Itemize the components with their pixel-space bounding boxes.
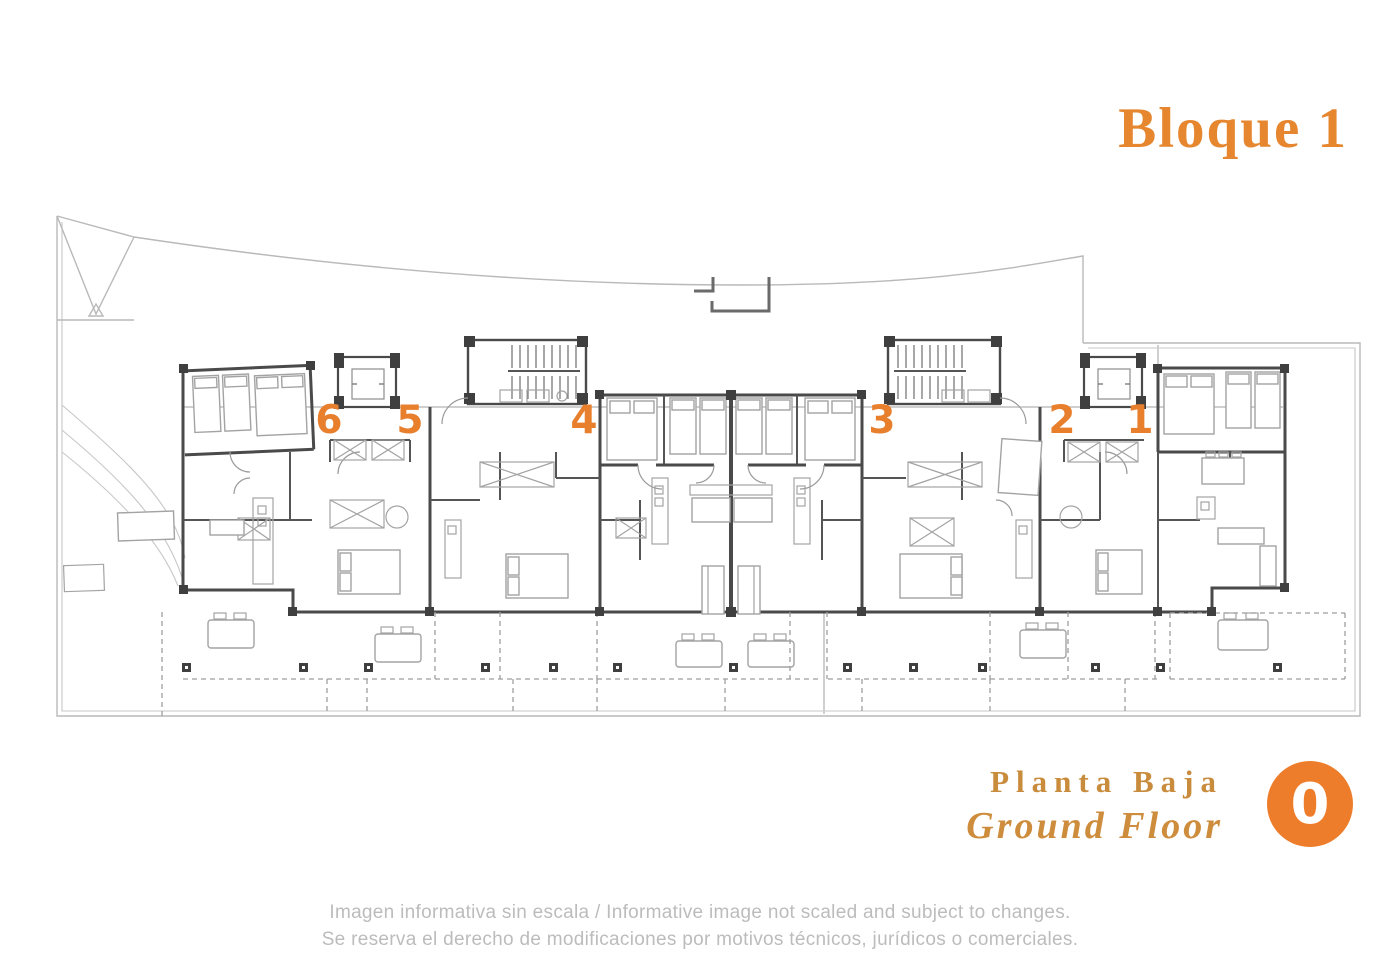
staircase-right — [884, 336, 1026, 424]
floor-name-en: Ground Floor — [966, 804, 1223, 848]
disclaimer: Imagen informativa sin escala / Informat… — [0, 899, 1400, 953]
bedroom-beds-left — [192, 372, 307, 439]
floor-number-badge: 0 — [1267, 761, 1353, 847]
floorplan-page: Bloque 1 — [0, 0, 1400, 969]
unit-label-3: 3 — [868, 398, 895, 443]
unit-label-1: 1 — [1126, 398, 1153, 443]
entry-gate — [694, 277, 769, 311]
unit-label-5: 5 — [396, 398, 423, 443]
terrace-tables — [208, 613, 1268, 667]
unit-label-6: 6 — [315, 398, 342, 443]
staircase-left — [442, 336, 588, 424]
floor-label: Planta Baja Ground Floor — [966, 764, 1223, 848]
disclaimer-line-1: Imagen informativa sin escala / Informat… — [0, 899, 1400, 926]
disclaimer-line-2: Se reserva el derecho de modificaciones … — [0, 926, 1400, 953]
unit-label-2: 2 — [1048, 398, 1075, 443]
floor-name-es: Planta Baja — [966, 764, 1223, 800]
unit-number-labels: 6 5 4 3 2 1 — [315, 398, 1153, 443]
terrace-posts — [182, 663, 1282, 672]
ramp-triangle — [57, 216, 134, 320]
unit-label-4: 4 — [570, 398, 597, 443]
door-arcs — [230, 452, 1127, 516]
elevator-left — [334, 353, 400, 409]
driveway-curves — [62, 405, 185, 586]
